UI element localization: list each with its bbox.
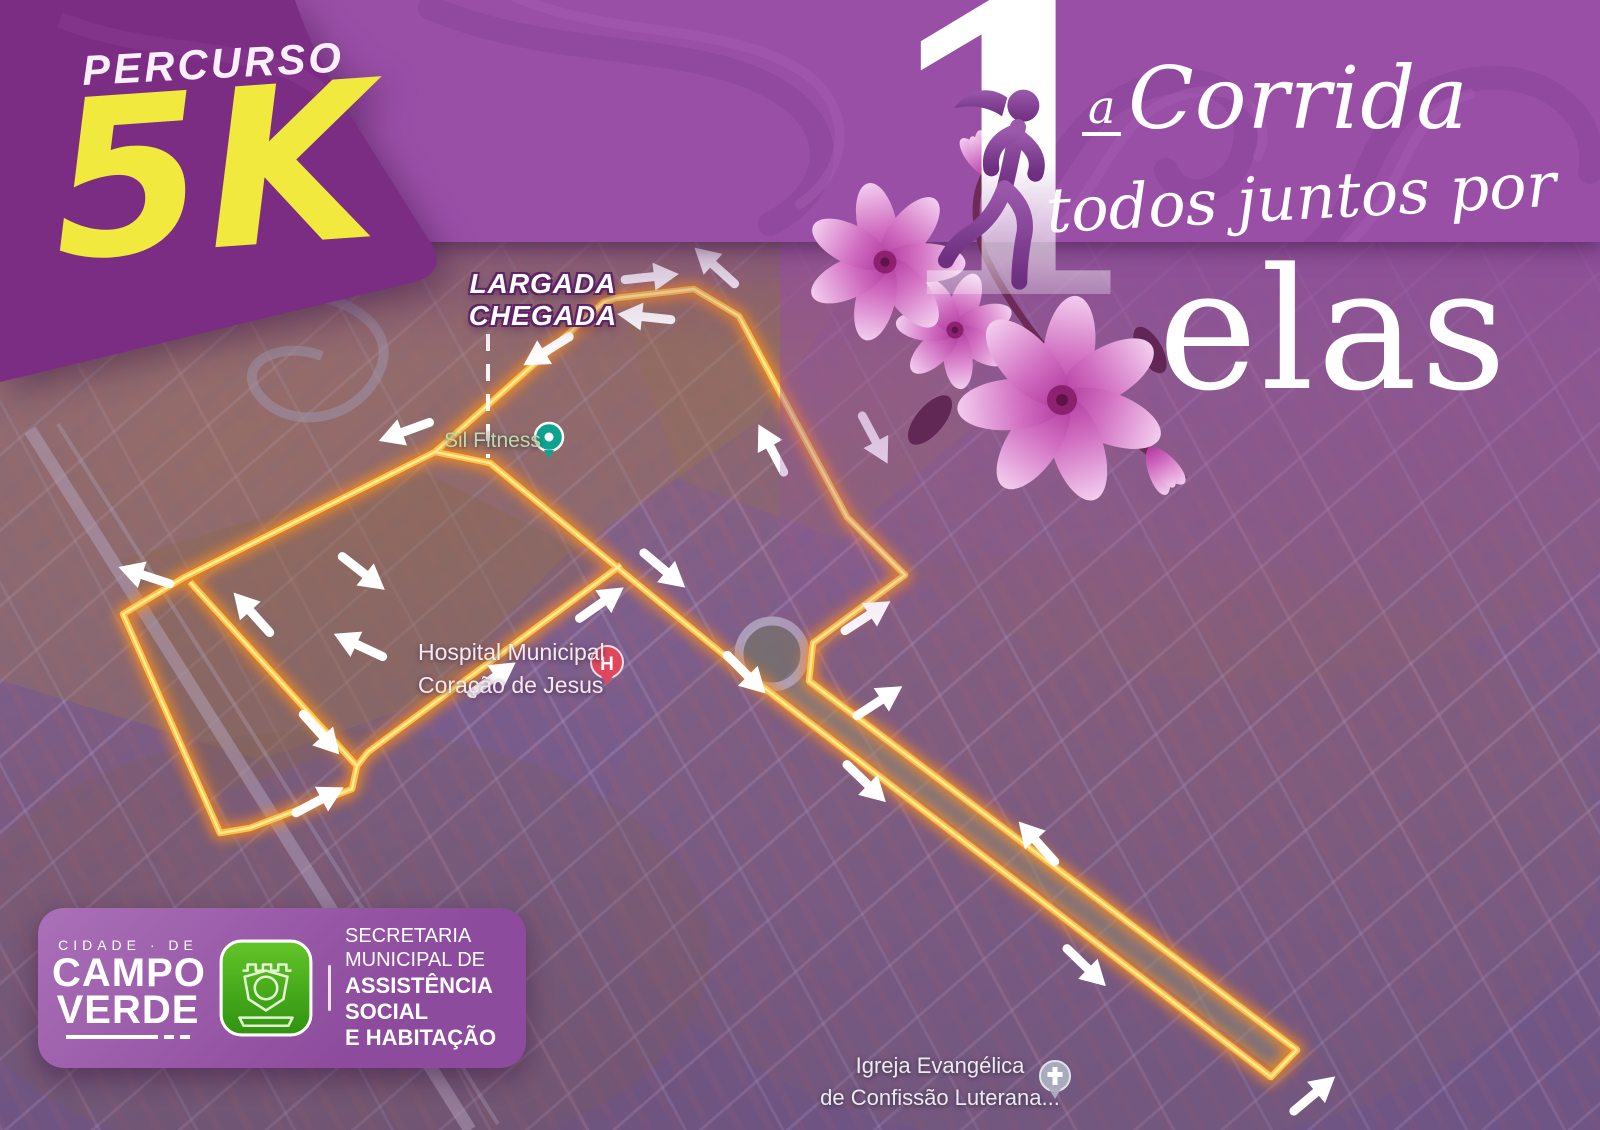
edition-ordinal: a [1082,84,1121,136]
divider [328,965,331,1011]
runner-woman-icon [938,66,1058,316]
hospital-pin: H [591,646,623,685]
department-title: SECRETARIA MUNICIPAL DE ASSISTÊNCIA SOCI… [345,925,512,1050]
city-crest-icon [218,938,314,1038]
city-name-line2: VERDE [52,992,204,1029]
event-highlight: elas [1158,246,1510,414]
race-route-poster: H [0,0,1600,1130]
svg-text:H: H [600,654,614,675]
city-name-line1: CAMPO [52,955,204,992]
municipal-banner: CIDADE · DE CAMPO VERDE SECRETARIA [38,908,526,1068]
event-title-word: Corrida [1128,56,1469,142]
badge-distance: 5K [45,51,384,295]
underline-decoration [52,1035,204,1039]
city-logo: CIDADE · DE CAMPO VERDE [52,937,204,1040]
distance-badge: PERCURSO 5K [0,0,480,400]
